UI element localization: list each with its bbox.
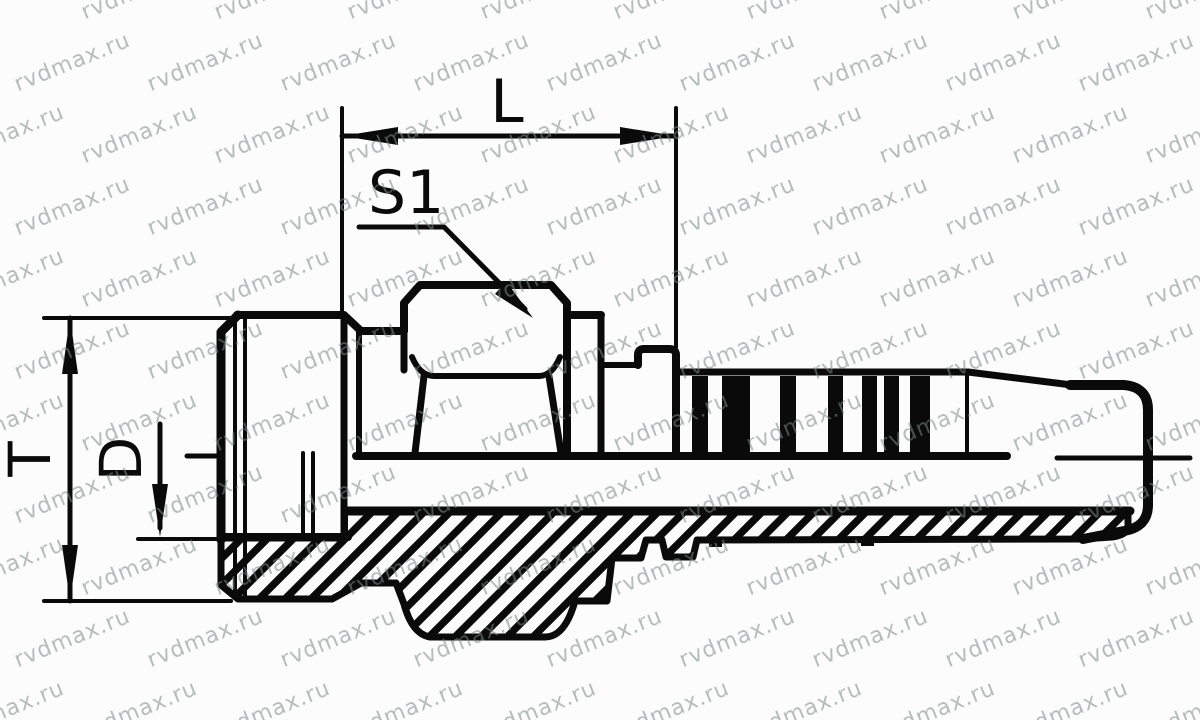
arrowhead-down — [152, 484, 168, 537]
thread-top-edge — [237, 315, 404, 331]
arrowhead-down — [62, 545, 78, 601]
hex-corner-edge — [549, 376, 561, 453]
arrowhead-up — [62, 318, 78, 374]
barb-serrations — [692, 376, 930, 458]
hex-nut — [404, 285, 567, 455]
dim-label-length: L — [490, 67, 524, 137]
dim-label-hex-size: S1 — [368, 158, 444, 228]
barb-face — [780, 376, 796, 458]
hex-outline — [404, 285, 567, 455]
drawing-stage: L T D S1 rvdmax.rurvdmax.rurvdmax.rurvdm… — [0, 0, 1200, 720]
arrowhead-right — [620, 127, 676, 145]
barb-face — [692, 376, 708, 458]
collar-and-ring — [567, 315, 676, 456]
barb-face — [910, 376, 930, 458]
hex-face-arc — [412, 357, 560, 376]
label-hex-size: S1 — [359, 158, 533, 318]
dim-label-bore-diameter: D — [87, 437, 155, 482]
hex-corner-edge — [415, 376, 424, 453]
barb-nub — [709, 537, 722, 547]
barb-face — [884, 376, 899, 458]
fitting-technical-drawing: L T D S1 — [0, 0, 1200, 720]
barb-face — [862, 376, 877, 458]
arrowhead-left — [342, 127, 398, 145]
dimension-bore-diameter: D — [87, 424, 231, 539]
ring-outline — [638, 349, 676, 456]
dim-label-outer-diameter: T — [0, 441, 64, 478]
barb-face — [722, 376, 750, 458]
section-cut-region — [221, 511, 1128, 637]
barb-face — [828, 376, 843, 458]
section-hatch — [221, 511, 1128, 637]
barb-nub — [861, 536, 874, 546]
